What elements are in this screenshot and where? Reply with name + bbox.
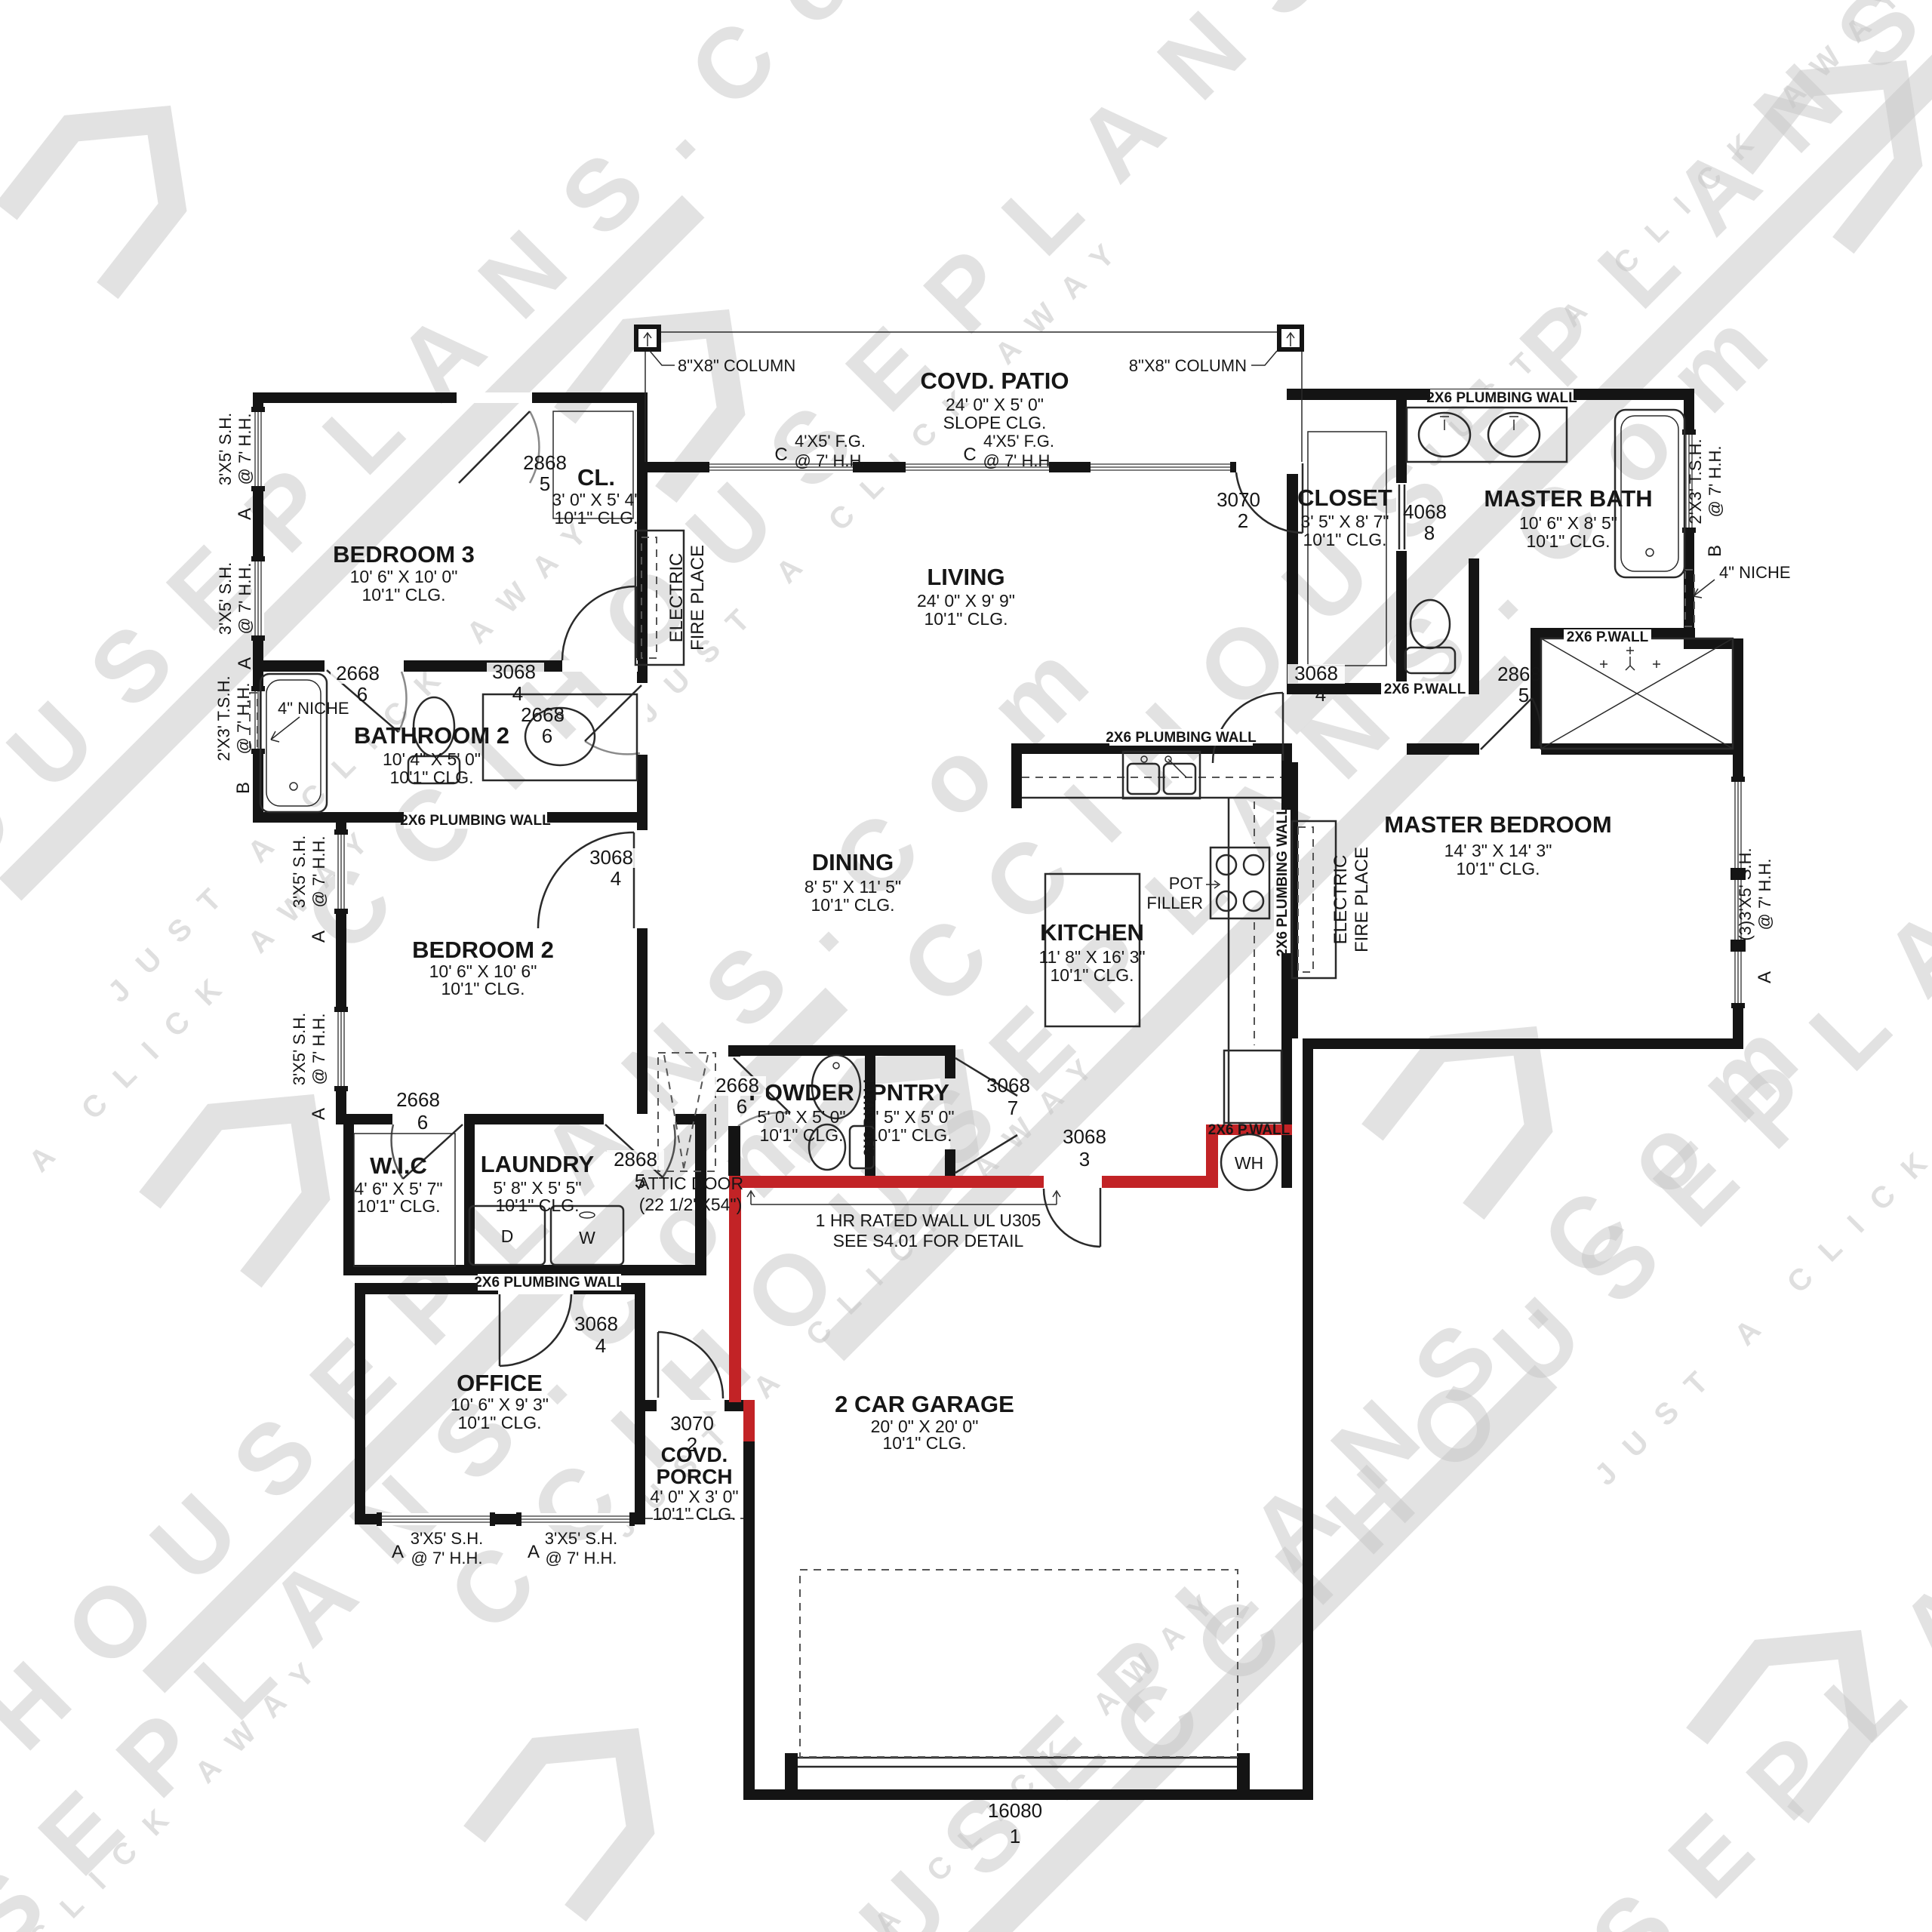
svg-text:ELECTRIC: ELECTRIC	[1331, 855, 1351, 945]
svg-text:10'1" CLG.: 10'1" CLG.	[811, 895, 894, 915]
plumbing-wall-label-laundry: 2X6 PLUMBING WALL	[474, 1274, 625, 1291]
rated-wall-note-2: SEE S4.01 FOR DETAIL	[833, 1231, 1024, 1251]
svg-text:3068: 3068	[1063, 1125, 1106, 1148]
svg-text:10'1" CLG.: 10'1" CLG.	[361, 585, 445, 605]
svg-text:2X6 PLUMBING WALL: 2X6 PLUMBING WALL	[400, 813, 551, 829]
svg-text:5: 5	[1518, 684, 1529, 706]
svg-text:JUST A CLICK AWAY: JUST A CLICK AWAY	[0, 811, 390, 1318]
pot-filler-label-2: FILLER	[1146, 894, 1203, 912]
svg-text:@ 7' H.H.: @ 7' H.H.	[1755, 859, 1774, 931]
plumbing-wall-label-kitchen: 2X6 PLUMBING WALL	[1106, 729, 1257, 746]
svg-text:@ 7' H.H.: @ 7' H.H.	[411, 1549, 483, 1567]
svg-text:LIVING: LIVING	[927, 564, 1004, 590]
svg-text:3068: 3068	[589, 846, 633, 869]
room-label-laundry: LAUNDRY 5' 8" X 5' 5" 10'1" CLG.	[481, 1151, 595, 1215]
window-office-1	[377, 1512, 495, 1526]
water-heater-label: WH	[1235, 1153, 1263, 1173]
svg-text:2868: 2868	[1497, 663, 1541, 685]
washer-label: W	[579, 1228, 595, 1247]
svg-text:2X6 P.WALL: 2X6 P.WALL	[1208, 1122, 1291, 1138]
svg-text:3' 5" X 8' 7": 3' 5" X 8' 7"	[1300, 512, 1389, 531]
svg-text:MASTER BATH: MASTER BATH	[1484, 485, 1652, 512]
svg-text:MASTER BEDROOM: MASTER BEDROOM	[1384, 811, 1611, 838]
attic-label-1: ATTIC DOOR	[638, 1174, 743, 1193]
svg-text:10'1" CLG.: 10'1" CLG.	[868, 1125, 952, 1145]
svg-text:6: 6	[542, 724, 552, 747]
watermark: CCIHOUSEPLANS.Com JUST A CLICK AWAY CCIH…	[0, 0, 1932, 1932]
svg-text:10' 6" X 9' 3": 10' 6" X 9' 3"	[451, 1395, 549, 1414]
svg-text:SLOPE CLG.: SLOPE CLG.	[943, 413, 1047, 432]
door-tag-bd2: 30684	[583, 846, 640, 890]
svg-text:3070: 3070	[1217, 488, 1260, 511]
svg-text:DINING: DINING	[812, 849, 894, 875]
svg-text:C: C	[963, 445, 976, 465]
svg-text:A: A	[309, 931, 329, 943]
svg-text:2: 2	[687, 1433, 697, 1456]
p-wall-label-shower: 2X6 P.WALL	[1564, 629, 1651, 645]
svg-text:5: 5	[540, 472, 550, 495]
svg-text:3'X5' S.H.: 3'X5' S.H.	[216, 562, 235, 635]
master-shower	[1541, 638, 1733, 749]
svg-text:10'1" CLG.: 10'1" CLG.	[882, 1433, 966, 1453]
room-label-closet: CLOSET 3' 5" X 8' 7" 10'1" CLG.	[1297, 485, 1392, 549]
svg-text:KITCHEN: KITCHEN	[1040, 919, 1144, 946]
niche-label-master: 4" NICHE	[1719, 563, 1791, 582]
svg-text:3070: 3070	[670, 1412, 714, 1435]
svg-text:8: 8	[1424, 521, 1435, 544]
svg-text:BEDROOM 2: BEDROOM 2	[412, 937, 554, 963]
svg-text:3068: 3068	[1294, 662, 1338, 685]
svg-text:10'1" CLG.: 10'1" CLG.	[389, 768, 473, 787]
plumbing-wall-label-kitchen-vert: 2X6 PLUMBING WALL	[1274, 806, 1291, 957]
svg-text:@ 7' H.H.: @ 7' H.H.	[234, 683, 253, 755]
svg-text:10'1" CLG.: 10'1" CLG.	[924, 609, 1008, 629]
svg-text:@ 7' H.H.: @ 7' H.H.	[309, 1014, 328, 1085]
pot-filler-label-1: POT	[1169, 874, 1203, 893]
p-wall-label-toilet: 2X6 P.WALL	[1381, 681, 1469, 697]
svg-text:BATHROOM 2: BATHROOM 2	[354, 722, 509, 749]
svg-text:2X6 P.WALL: 2X6 P.WALL	[1567, 629, 1649, 645]
room-label-garage: 2 CAR GARAGE 20' 0" X 20' 0" 10'1" CLG.	[835, 1391, 1014, 1453]
svg-text:B: B	[233, 782, 254, 794]
window-tag-bath2: 2'X3' T.S.H.@ 7' H.H.B	[214, 675, 254, 794]
column-label-left: 8"X8" COLUMN	[678, 356, 795, 375]
svg-text:ELECTRIC: ELECTRIC	[666, 553, 687, 643]
svg-text:2X6 PLUMBING WALL: 2X6 PLUMBING WALL	[1106, 730, 1257, 746]
svg-text:4'X5' F.G.: 4'X5' F.G.	[983, 432, 1054, 451]
door-tag-garage-entry: 30683	[1063, 1125, 1106, 1171]
svg-text:24' 0" X 5' 0": 24' 0" X 5' 0"	[946, 395, 1044, 414]
svg-text:10'1" CLG.: 10'1" CLG.	[1526, 531, 1610, 551]
svg-text:3'X5' S.H.: 3'X5' S.H.	[411, 1529, 483, 1548]
svg-text:(3)3'X5' S.H.: (3)3'X5' S.H.	[1736, 848, 1755, 940]
svg-text:4068: 4068	[1403, 500, 1447, 523]
door-garage-entry	[1044, 1188, 1100, 1247]
svg-text:3068: 3068	[574, 1312, 618, 1335]
door-tag-wic: 26686	[389, 1088, 447, 1134]
floor-plan-page: CCIHOUSEPLANS.Com JUST A CLICK AWAY CCIH…	[0, 0, 1932, 1932]
svg-text:6: 6	[737, 1095, 747, 1118]
rated-wall-note-1: 1 HR RATED WALL UL U305	[816, 1211, 1041, 1230]
svg-text:2X6 PLUMBING WALL: 2X6 PLUMBING WALL	[1275, 806, 1291, 957]
svg-text:3: 3	[1079, 1148, 1090, 1171]
svg-text:LAUNDRY: LAUNDRY	[481, 1151, 595, 1177]
svg-text:A: A	[309, 1108, 329, 1120]
svg-text:OFFICE: OFFICE	[457, 1370, 543, 1396]
fireplace-label-living: ELECTRIC FIRE PLACE	[666, 545, 708, 651]
svg-text:4: 4	[595, 1334, 606, 1357]
svg-text:FIRE PLACE: FIRE PLACE	[1352, 847, 1372, 952]
svg-text:3068: 3068	[986, 1074, 1030, 1097]
plumbing-wall-label-bath2: 2X6 PLUMBING WALL	[400, 812, 551, 829]
svg-text:3' 0" X 5' 4": 3' 0" X 5' 4"	[552, 490, 640, 509]
svg-text:10'1" CLG.: 10'1" CLG.	[1303, 530, 1386, 549]
dryer-label: D	[501, 1226, 514, 1246]
svg-text:6: 6	[357, 683, 368, 706]
svg-text:24' 0" X 9' 9": 24' 0" X 9' 9"	[917, 591, 1015, 611]
window-bd2-1	[334, 829, 348, 914]
svg-text:2868: 2868	[614, 1148, 657, 1171]
svg-text:7: 7	[1008, 1097, 1018, 1119]
svg-text:11' 8" X 16' 3": 11' 8" X 16' 3"	[1038, 947, 1145, 967]
svg-text:3'X5' S.H.: 3'X5' S.H.	[216, 413, 235, 485]
door-bd2	[538, 830, 648, 928]
plumbing-wall-label-master: 2X6 PLUMBING WALL	[1426, 389, 1577, 406]
svg-text:2X6 P.WALL: 2X6 P.WALL	[862, 1074, 878, 1156]
svg-text:2X6 PLUMBING WALL: 2X6 PLUMBING WALL	[1426, 390, 1577, 406]
niche-label-bath2: 4" NICHE	[278, 699, 349, 718]
svg-text:2' 5" X 5' 0": 2' 5" X 5' 0"	[866, 1107, 954, 1127]
svg-text:14' 3" X 14' 3": 14' 3" X 14' 3"	[1444, 841, 1552, 860]
svg-text:@ 7' H.H.: @ 7' H.H.	[795, 451, 866, 470]
svg-text:PNTRY: PNTRY	[871, 1079, 949, 1106]
room-label-bedroom2: BEDROOM 2 10' 6" X 10' 6" 10'1" CLG.	[412, 937, 554, 998]
svg-text:B: B	[1705, 545, 1725, 557]
svg-text:CLOSET: CLOSET	[1297, 485, 1392, 511]
svg-text:W.I.C: W.I.C	[370, 1152, 427, 1179]
svg-text:2668: 2668	[715, 1074, 759, 1097]
room-label-pantry: PNTRY 2' 5" X 5' 0" 10'1" CLG.	[866, 1079, 954, 1145]
svg-text:10' 6" X 10' 0": 10' 6" X 10' 0"	[350, 567, 458, 586]
svg-text:10' 6" X 8' 5": 10' 6" X 8' 5"	[1519, 513, 1617, 533]
room-label-master-bedroom: MASTER BEDROOM 14' 3" X 14' 3" 10'1" CLG…	[1384, 811, 1611, 878]
svg-text:2668: 2668	[521, 703, 565, 726]
svg-text:6: 6	[417, 1111, 428, 1134]
attic-label-2: (22 1/2"X54")	[639, 1195, 743, 1214]
svg-text:2 CAR GARAGE: 2 CAR GARAGE	[835, 1391, 1014, 1417]
svg-text:A: A	[1755, 971, 1775, 983]
svg-text:10'1" CLG.: 10'1" CLG.	[1456, 859, 1540, 878]
svg-text:10' 4" X 5' 0": 10' 4" X 5' 0"	[383, 749, 481, 769]
svg-text:10'1" CLG.: 10'1" CLG.	[759, 1125, 843, 1145]
svg-text:10'1" CLG.: 10'1" CLG.	[457, 1413, 541, 1432]
column-label-right: 8"X8" COLUMN	[1129, 356, 1247, 375]
svg-text:10'1" CLG.: 10'1" CLG.	[356, 1196, 440, 1216]
svg-text:2668: 2668	[396, 1088, 440, 1111]
p-wall-label-red: 2X6 P.WALL	[1208, 1122, 1291, 1138]
fireplace-label-master: ELECTRIC FIRE PLACE	[1331, 847, 1372, 952]
svg-text:10'1" CLG.: 10'1" CLG.	[441, 979, 525, 998]
room-label-wic: W.I.C 4' 6" X 5' 7" 10'1" CLG.	[354, 1152, 442, 1216]
room-label-dining: DINING 8' 5" X 11' 5" 10'1" CLG.	[804, 849, 901, 915]
svg-text:10'1" CLG.: 10'1" CLG.	[1050, 965, 1134, 985]
svg-text:A: A	[392, 1542, 404, 1562]
svg-text:8' 5" X 11' 5": 8' 5" X 11' 5"	[804, 877, 901, 897]
svg-text:16080: 16080	[988, 1799, 1042, 1822]
svg-text:10'1" CLG.: 10'1" CLG.	[652, 1504, 736, 1524]
kitchen-fridge	[1224, 1051, 1281, 1123]
room-label-office: OFFICE 10' 6" X 9' 3" 10'1" CLG.	[451, 1370, 549, 1432]
svg-text:2'X3' T.S.H.: 2'X3' T.S.H.	[214, 675, 233, 761]
svg-text:2: 2	[1238, 509, 1248, 532]
window-office-2	[516, 1512, 635, 1526]
svg-text:5' 0" X 5' 0": 5' 0" X 5' 0"	[757, 1107, 845, 1127]
p-wall-label-pantry-divider: 2X6 P.WALL	[862, 1074, 878, 1156]
svg-text:3'X5' S.H.: 3'X5' S.H.	[290, 1013, 309, 1085]
door-tag-patio: 30702	[1217, 488, 1260, 532]
svg-text:@ 7' H.H.: @ 7' H.H.	[1706, 446, 1724, 518]
floor-plan-drawing: CCIHOUSEPLANS.Com JUST A CLICK AWAY CCIH…	[0, 0, 1932, 1932]
svg-text:PORCH: PORCH	[656, 1465, 732, 1488]
svg-text:CL.: CL.	[577, 464, 615, 491]
room-label-living: LIVING 24' 0" X 9' 9" 10'1" CLG.	[917, 564, 1015, 629]
svg-text:FIRE PLACE: FIRE PLACE	[688, 545, 708, 651]
svg-text:4: 4	[512, 682, 523, 705]
svg-text:A: A	[235, 657, 255, 669]
door-tag-cl: 28685	[523, 451, 567, 495]
svg-text:2668: 2668	[336, 662, 380, 685]
svg-text:COVD. PATIO: COVD. PATIO	[921, 368, 1069, 394]
room-label-kitchen: KITCHEN 11' 8" X 16' 3" 10'1" CLG.	[1038, 919, 1145, 985]
svg-text:2X6 P.WALL: 2X6 P.WALL	[1384, 681, 1466, 697]
svg-text:BEDROOM 3: BEDROOM 3	[333, 541, 475, 568]
svg-text:10'1" CLG.: 10'1" CLG.	[554, 508, 638, 528]
svg-text:A: A	[528, 1542, 540, 1562]
svg-text:2868: 2868	[523, 451, 567, 474]
window-bd2-2	[334, 1007, 348, 1091]
svg-text:3'X5' S.H.: 3'X5' S.H.	[290, 835, 309, 908]
svg-text:4: 4	[1315, 683, 1326, 706]
svg-text:@ 7' H.H.: @ 7' H.H.	[309, 836, 328, 908]
svg-text:@ 7' H.H.: @ 7' H.H.	[983, 451, 1055, 470]
svg-text:2X6 PLUMBING WALL: 2X6 PLUMBING WALL	[474, 1275, 625, 1291]
svg-text:4'X5' F.G.: 4'X5' F.G.	[795, 432, 866, 451]
svg-text:4: 4	[611, 867, 621, 890]
svg-text:10'1" CLG.: 10'1" CLG.	[495, 1195, 579, 1215]
svg-text:2'X3' T.S.H.: 2'X3' T.S.H.	[1686, 438, 1705, 524]
svg-text:@ 7' H.H.: @ 7' H.H.	[235, 563, 254, 635]
svg-text:@ 7' H.H.: @ 7' H.H.	[546, 1549, 617, 1567]
svg-text:3068: 3068	[492, 660, 536, 683]
room-label-bedroom3: BEDROOM 3 10' 6" X 10' 0" 10'1" CLG.	[333, 541, 475, 605]
svg-text:@ 7' H.H.: @ 7' H.H.	[235, 414, 254, 485]
svg-text:A: A	[235, 508, 255, 520]
svg-text:1: 1	[1010, 1825, 1020, 1847]
svg-text:3'X5' S.H.: 3'X5' S.H.	[545, 1529, 617, 1548]
svg-text:C: C	[774, 445, 787, 465]
